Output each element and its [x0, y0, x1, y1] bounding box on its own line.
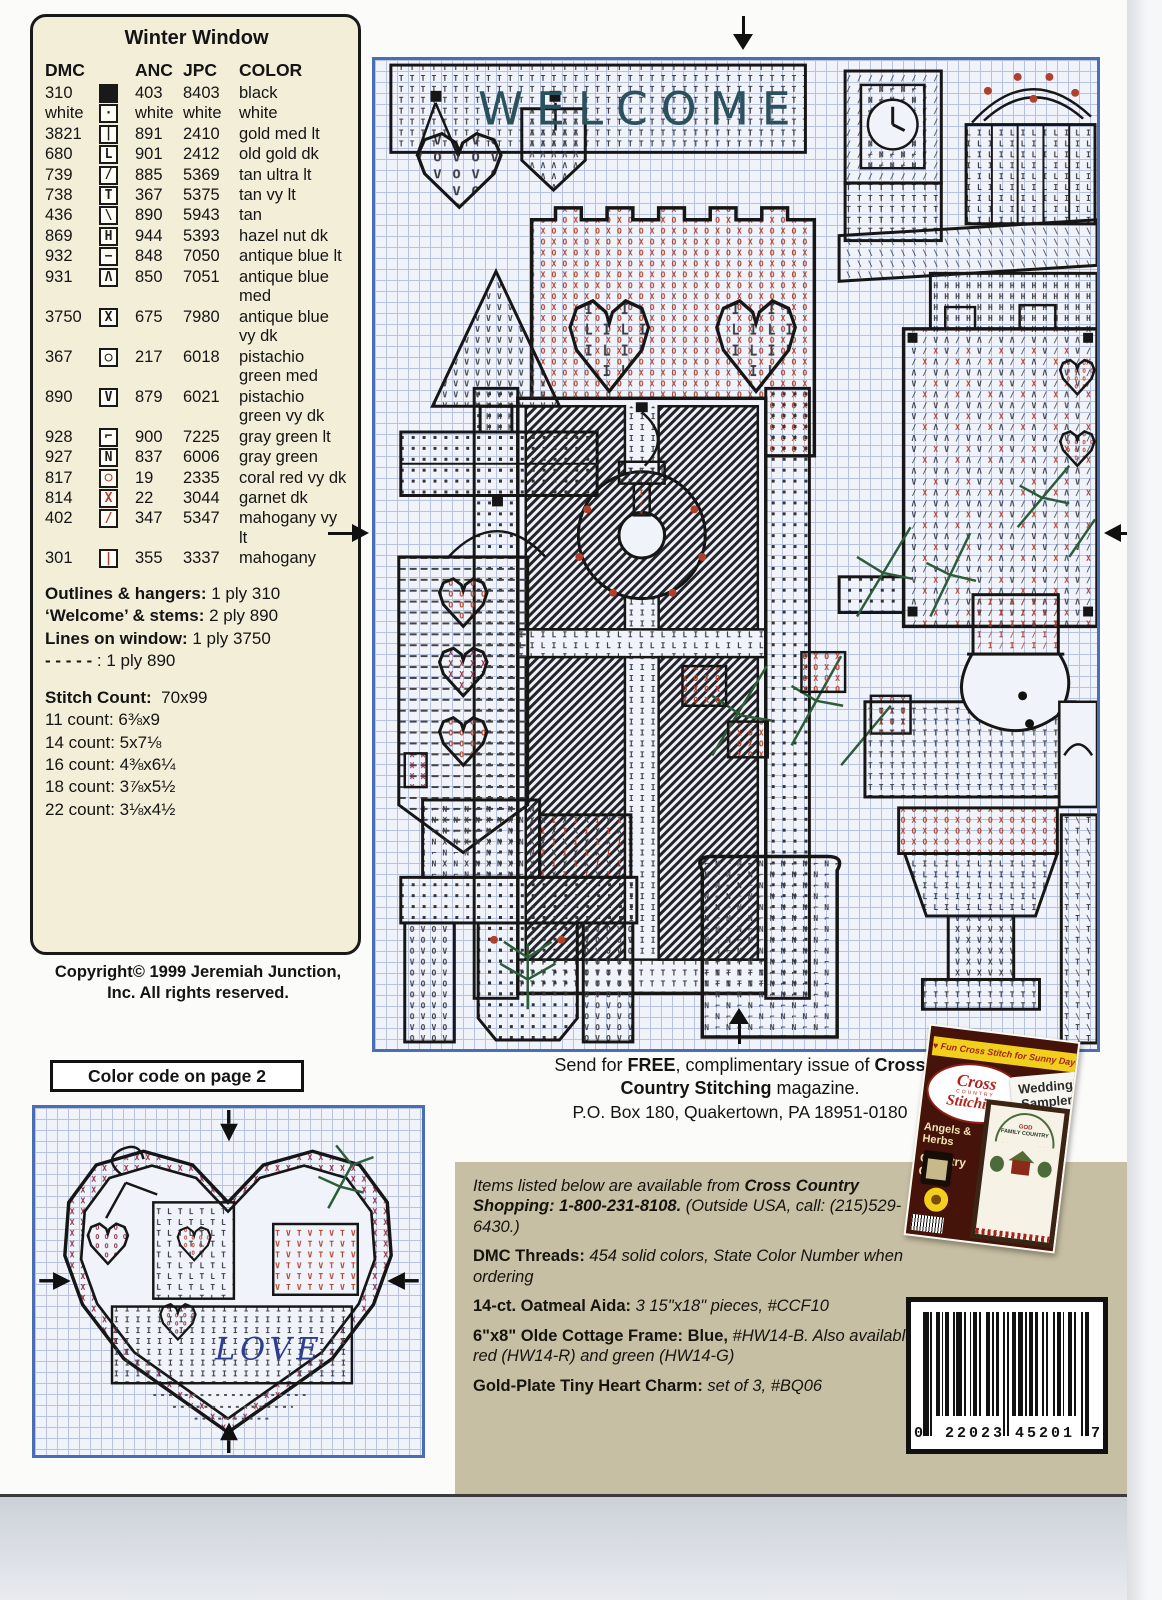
barcode-group1: 22023	[945, 1425, 1005, 1442]
magazine-cover-art: ♥ Fun Cross Stitch for Sunny Days Cross …	[906, 1026, 1078, 1251]
stitch-symbol-icon	[99, 84, 118, 103]
stitch-symbol-icon: V	[99, 388, 118, 407]
stitch-symbol-icon: ○	[99, 469, 118, 488]
offer-brand1: Cross	[875, 1055, 926, 1075]
item-entry: Gold-Plate Tiny Heart Charm: set of 3, #…	[473, 1376, 943, 1396]
item-label: 14-ct. Oatmeal Aida:	[473, 1297, 631, 1315]
key-row: 890V8796021pistachio green vy dk	[45, 388, 348, 427]
key-anc: 879	[135, 388, 183, 407]
item-entry: DMC Threads: 454 solid colors, State Col…	[473, 1246, 943, 1287]
key-row: 869H9445393hazel nut dk	[45, 227, 348, 246]
heart-chart: LOVE	[32, 1105, 425, 1458]
key-symbol-cell: X	[99, 489, 135, 508]
key-row: white·whitewhitewhite	[45, 104, 348, 123]
key-symbol-cell: ·	[99, 104, 135, 123]
key-anc: 944	[135, 227, 183, 246]
key-symbol-cell: /	[99, 509, 135, 528]
key-row: 738T3675375tan vy lt	[45, 186, 348, 205]
key-symbol-cell: ⌐	[99, 428, 135, 447]
key-table-rows: 3104038403blackwhite·whitewhitewhite3821…	[45, 84, 348, 569]
offer-mid: , complimentary issue of	[675, 1055, 874, 1075]
key-symbol-cell: −	[99, 247, 135, 266]
stitch-count-label: Stitch Count:	[45, 688, 152, 707]
intro-i1: Items listed below are available from	[473, 1177, 744, 1195]
key-color-name: tan vy lt	[239, 186, 348, 205]
key-row: 301|3553337mahogany	[45, 549, 348, 568]
key-anc: 837	[135, 448, 183, 467]
key-row: 814X223044garnet dk	[45, 489, 348, 508]
flower-urn	[899, 808, 1058, 1009]
offer-post: magazine.	[771, 1078, 859, 1098]
key-symbol-cell: N	[99, 448, 135, 467]
key-row: 932−8487050antique blue lt	[45, 247, 348, 266]
key-anc: 891	[135, 125, 183, 144]
note-value: 2 ply 890	[204, 606, 278, 625]
key-anc: 347	[135, 509, 183, 528]
stitch-symbol-icon: ·	[99, 104, 118, 123]
key-dmc: 814	[45, 489, 99, 508]
sampler-tree-left	[989, 1155, 1005, 1173]
magazine-jar-photo	[920, 1150, 954, 1187]
item-detail: set of 3, #BQ06	[703, 1377, 822, 1395]
key-dmc: 932	[45, 247, 99, 266]
key-jpc: 5943	[183, 206, 239, 225]
key-row: 680L9012412old gold dk	[45, 145, 348, 164]
key-color-name: antique blue med	[239, 268, 348, 307]
key-dmc: 367	[45, 348, 99, 367]
post-column	[1061, 815, 1097, 1043]
key-dmc: 310	[45, 84, 99, 103]
key-row: 931Λ8507051antique blue med	[45, 268, 348, 307]
scanner-background	[0, 1497, 1162, 1600]
sampler-checker-border	[975, 1228, 1049, 1243]
size-line: 18 count: 3⅞x5½	[45, 776, 348, 798]
key-anc: 355	[135, 549, 183, 568]
stitch-symbol-icon: L	[99, 145, 118, 164]
key-symbol-cell	[99, 84, 135, 103]
size-line: 14 count: 5x7⅛	[45, 732, 348, 754]
key-symbol-cell: ○	[99, 348, 135, 367]
key-notes: Outlines & hangers: 1 ply 310‘Welcome’ &…	[45, 583, 348, 673]
key-jpc: 6021	[183, 388, 239, 407]
key-row: 928⌐9007225gray green lt	[45, 428, 348, 447]
magazine-barcode	[910, 1214, 944, 1234]
key-dmc: 436	[45, 206, 99, 225]
item-label: Gold-Plate Tiny Heart Charm:	[473, 1377, 703, 1395]
key-anc: 890	[135, 206, 183, 225]
stitch-count-line: Stitch Count: 70x99	[45, 687, 348, 709]
key-color-name: gold med lt	[239, 125, 348, 144]
key-symbol-cell: L	[99, 145, 135, 164]
stitch-symbol-icon: |	[99, 549, 118, 568]
stitch-symbol-icon: Λ	[99, 268, 118, 287]
sampler-house	[1011, 1160, 1031, 1176]
key-jpc: 5369	[183, 166, 239, 185]
key-row: 3104038403black	[45, 84, 348, 103]
stitch-symbol-icon: ⌐	[99, 428, 118, 447]
key-symbol-cell: X	[99, 308, 135, 327]
key-jpc: 2410	[183, 125, 239, 144]
key-symbol-cell: H	[99, 227, 135, 246]
color-code-note: Color code on page 2	[50, 1060, 304, 1092]
offer-brand2: Country Stitching	[620, 1078, 771, 1098]
copyright-line1: Copyright© 1999 Jeremiah Junction,	[36, 962, 360, 983]
sampler-tree-right	[1037, 1161, 1053, 1179]
note-label: Outlines & hangers:	[45, 584, 207, 603]
key-anc: 22	[135, 489, 183, 508]
key-symbol-cell: \	[99, 206, 135, 225]
key-symbol-cell: V	[99, 388, 135, 407]
key-color-name: black	[239, 84, 348, 103]
col-dmc: DMC	[45, 60, 99, 81]
offer-pre: Send for	[554, 1055, 627, 1075]
key-row: 739/8855369tan ultra lt	[45, 166, 348, 185]
key-dmc: 890	[45, 388, 99, 407]
key-anc: 19	[135, 469, 183, 488]
note-label: Lines on window:	[45, 629, 188, 648]
key-anc: 850	[135, 268, 183, 287]
barcode-digit-right: 7	[1091, 1425, 1100, 1442]
key-color-name: gray green lt	[239, 428, 348, 447]
key-row: 3750X6757980antique blue vy dk	[45, 308, 348, 347]
stitch-symbol-icon: N	[99, 448, 118, 467]
size-lines: 11 count: 6⅜x914 count: 5x7⅛16 count: 4⅜…	[45, 709, 348, 821]
size-line: 11 count: 6⅜x9	[45, 709, 348, 731]
key-color-name: coral red vy dk	[239, 469, 348, 488]
item-label: DMC Threads:	[473, 1247, 585, 1265]
red-patch	[273, 1224, 358, 1295]
stitch-symbol-icon: /	[99, 509, 118, 528]
stitch-symbol-icon: X	[99, 489, 118, 508]
key-symbol-cell: T	[99, 186, 135, 205]
key-symbol-cell: |	[99, 549, 135, 568]
main-chart-motifs: T V Λ H I / \ OV VO N⌐ XN XI IX LI IL N⌐…	[375, 60, 1097, 1049]
offer-free: FREE	[627, 1055, 675, 1075]
item-entry: 14-ct. Oatmeal Aida: 3 15"x18" pieces, #…	[473, 1296, 943, 1316]
note-value: 1 ply 3750	[188, 629, 271, 648]
key-anc: 901	[135, 145, 183, 164]
key-jpc: white	[183, 104, 239, 123]
copyright-line2: Inc. All rights reserved.	[36, 983, 360, 1004]
key-dmc: 928	[45, 428, 99, 447]
stitch-symbol-icon: ○	[99, 348, 118, 367]
key-dmc: 739	[45, 166, 99, 185]
stitch-symbol-icon: |	[99, 125, 118, 144]
key-dmc: white	[45, 104, 99, 123]
key-symbol-cell: Λ	[99, 268, 135, 287]
key-color-name: tan	[239, 206, 348, 225]
key-symbol-cell: /	[99, 166, 135, 185]
stitch-symbol-icon: /	[99, 166, 118, 185]
key-row: 927N8376006gray green	[45, 448, 348, 467]
key-dmc: 817	[45, 469, 99, 488]
key-dmc: 738	[45, 186, 99, 205]
key-color-name: pistachio green vy dk	[239, 388, 348, 427]
key-anc: 675	[135, 308, 183, 327]
key-jpc: 7225	[183, 428, 239, 447]
col-jpc: JPC	[183, 60, 239, 81]
copyright-notice: Copyright© 1999 Jeremiah Junction, Inc. …	[36, 962, 360, 1003]
key-jpc: 7051	[183, 268, 239, 287]
key-dmc: 301	[45, 549, 99, 568]
key-color-name: garnet dk	[239, 489, 348, 508]
key-anc: 367	[135, 186, 183, 205]
stitch-count-value: 70x99	[161, 688, 207, 707]
size-line: 16 count: 4⅜x6¼	[45, 754, 348, 776]
key-row: 3821|8912410gold med lt	[45, 125, 348, 144]
items-text: Items listed below are available from Cr…	[473, 1176, 943, 1405]
key-symbol-cell: ○	[99, 469, 135, 488]
key-color-name: pistachio green med	[239, 348, 348, 387]
key-note-line: Outlines & hangers: 1 ply 310	[45, 583, 348, 605]
key-color-name: gray green	[239, 448, 348, 467]
items-entries: DMC Threads: 454 solid colors, State Col…	[473, 1246, 943, 1396]
key-color-name: hazel nut dk	[239, 227, 348, 246]
stitch-count-block: Stitch Count: 70x99 11 count: 6⅜x914 cou…	[45, 687, 348, 822]
key-jpc: 2335	[183, 469, 239, 488]
key-row: 436\8905943tan	[45, 206, 348, 225]
key-anc: 900	[135, 428, 183, 447]
berry-basket	[966, 73, 1095, 224]
key-anc: 403	[135, 84, 183, 103]
magazine-sampler-frame: GOD FAMILY COUNTRY	[970, 1099, 1070, 1248]
key-color-name: antique blue vy dk	[239, 308, 348, 347]
stitch-symbol-icon: T	[99, 186, 118, 205]
welcome-word: WELCOME	[478, 83, 804, 136]
sunflower-icon	[923, 1186, 950, 1213]
key-note-line: ‘Welcome’ & stems: 2 ply 890	[45, 605, 348, 627]
key-jpc: 3044	[183, 489, 239, 508]
stitch-symbol-icon: −	[99, 247, 118, 266]
item-label: 6"x8" Olde Cottage Frame: Blue,	[473, 1327, 728, 1345]
note-label: ‘Welcome’ & stems:	[45, 606, 204, 625]
note-value: : 1 ply 890	[92, 651, 175, 670]
key-color-name: old gold dk	[239, 145, 348, 164]
key-note-line: Lines on window: 1 ply 3750	[45, 628, 348, 650]
pattern-title: Winter Window	[45, 27, 348, 50]
mantel-clock	[845, 71, 941, 241]
key-symbol-cell: |	[99, 125, 135, 144]
key-row: 367○2176018pistachio green med	[45, 348, 348, 387]
key-dmc: 931	[45, 268, 99, 287]
size-line: 22 count: 3⅛x4½	[45, 799, 348, 821]
wreath-arc	[995, 1110, 1058, 1149]
main-chart: T V Λ H I / \ OV VO N⌐ XN XI IX LI IL N⌐…	[372, 57, 1100, 1052]
key-jpc: 7050	[183, 247, 239, 266]
barcode-group2: 45201	[1015, 1425, 1075, 1442]
key-color-name: tan ultra lt	[239, 166, 348, 185]
key-row: 402/3475347mahogany vy lt	[45, 509, 348, 548]
key-dmc: 402	[45, 509, 99, 528]
stitch-symbol-icon: \	[99, 206, 118, 225]
col-anc: ANC	[135, 60, 183, 81]
key-anc: white	[135, 104, 183, 123]
key-jpc: 6006	[183, 448, 239, 467]
key-color-name: antique blue lt	[239, 247, 348, 266]
col-color: COLOR	[239, 60, 348, 81]
key-jpc: 8403	[183, 84, 239, 103]
note-label: - - - - -	[45, 651, 92, 670]
key-row: 817○192335coral red vy dk	[45, 469, 348, 488]
key-jpc: 3337	[183, 549, 239, 568]
barcode-bars	[923, 1312, 1091, 1416]
magazine-sampler-art: GOD FAMILY COUNTRY	[975, 1105, 1064, 1243]
garden-bench	[401, 877, 637, 1042]
key-jpc: 6018	[183, 348, 239, 367]
magazine-cover: ♥ Fun Cross Stitch for Sunny Days Cross …	[904, 1024, 1081, 1254]
page-right-edge-shadow	[1127, 0, 1162, 1600]
key-color-name: mahogany	[239, 549, 348, 568]
roof	[839, 220, 1097, 329]
heart-chart-motifs: LOVE	[35, 1108, 422, 1455]
key-dmc: 869	[45, 227, 99, 246]
item-detail: 3 15"x18" pieces, #CCF10	[631, 1297, 829, 1315]
key-jpc: 7980	[183, 308, 239, 327]
barcode-digits: 0 22023 45201 7	[911, 1425, 1103, 1445]
love-word: LOVE	[214, 1333, 324, 1368]
key-anc: 217	[135, 348, 183, 367]
barcode-digit-left: 0	[914, 1425, 926, 1442]
crock	[700, 856, 840, 1037]
key-dmc: 927	[45, 448, 99, 467]
stitch-symbol-icon: X	[99, 308, 118, 327]
key-color-name: white	[239, 104, 348, 123]
key-dmc: 680	[45, 145, 99, 164]
key-dmc: 3750	[45, 308, 99, 327]
stitch-symbol-icon: H	[99, 227, 118, 246]
key-dmc: 3821	[45, 125, 99, 144]
key-anc: 848	[135, 247, 183, 266]
pattern-key-panel: Winter Window DMC ANC JPC COLOR 31040384…	[30, 14, 361, 955]
magazine-side-feature1: Angels & Herbs	[922, 1122, 972, 1151]
key-jpc: 5347	[183, 509, 239, 528]
key-anc: 885	[135, 166, 183, 185]
note-value: 1 ply 310	[207, 584, 281, 603]
barcode-space	[1089, 1312, 1091, 1416]
key-note-line: - - - - - : 1 ply 890	[45, 650, 348, 672]
items-intro: Items listed below are available from Cr…	[473, 1176, 943, 1237]
key-table-header: DMC ANC JPC COLOR	[45, 60, 348, 81]
item-entry: 6"x8" Olde Cottage Frame: Blue, #HW14-B.…	[473, 1326, 943, 1367]
barcode: 0 22023 45201 7	[906, 1297, 1108, 1454]
key-jpc: 5375	[183, 186, 239, 205]
key-jpc: 2412	[183, 145, 239, 164]
key-color-name: mahogany vy lt	[239, 509, 348, 548]
heart-basket	[153, 1202, 234, 1298]
key-jpc: 5393	[183, 227, 239, 246]
